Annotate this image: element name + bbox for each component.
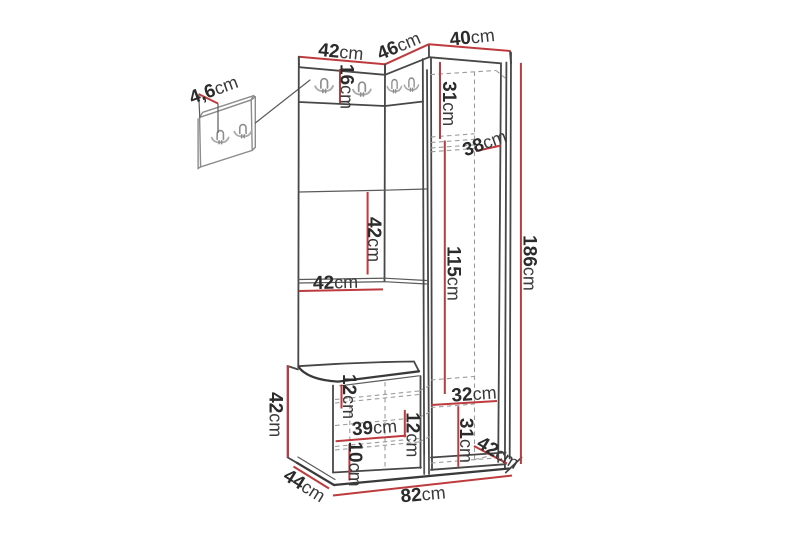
svg-text:31cm: 31cm — [438, 81, 459, 126]
svg-text:16cm: 16cm — [336, 64, 357, 109]
svg-text:42cm: 42cm — [265, 392, 286, 437]
svg-text:10cm: 10cm — [344, 441, 365, 486]
svg-text:42cm: 42cm — [313, 272, 359, 294]
svg-text:186cm: 186cm — [519, 235, 540, 291]
svg-text:115cm: 115cm — [442, 246, 463, 301]
svg-text:12cm: 12cm — [401, 412, 422, 457]
svg-text:42cm: 42cm — [317, 40, 364, 65]
svg-text:31cm: 31cm — [455, 418, 476, 463]
svg-text:42cm: 42cm — [363, 217, 384, 262]
svg-text:12cm: 12cm — [338, 374, 359, 419]
